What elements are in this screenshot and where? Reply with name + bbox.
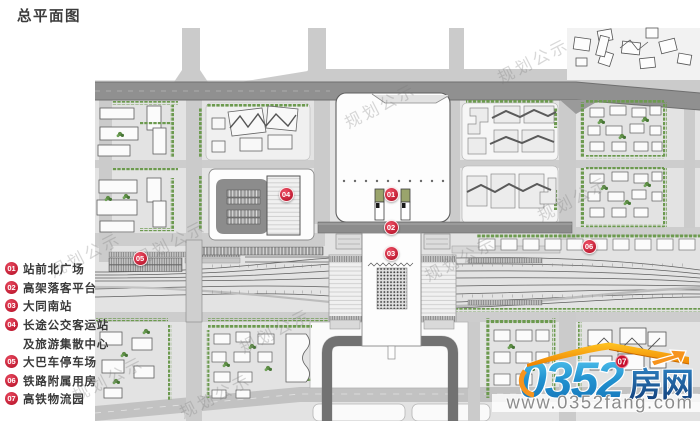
- svg-text:www.0352fang.com: www.0352fang.com: [505, 392, 693, 413]
- svg-text:07: 07: [618, 358, 627, 367]
